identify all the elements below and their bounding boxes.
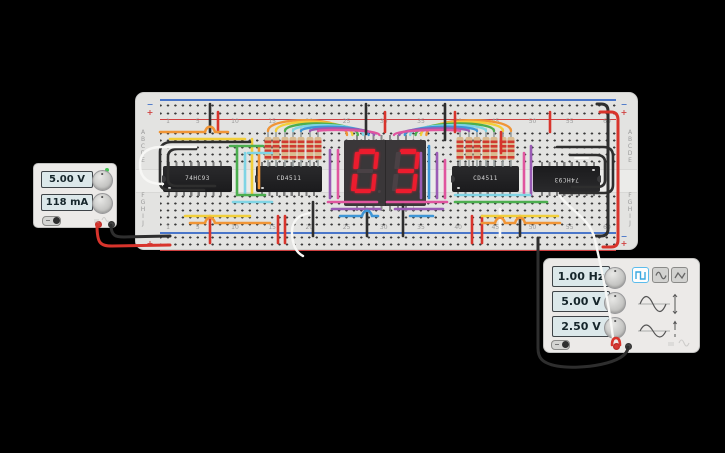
offset-display: 2.50 V	[552, 316, 610, 337]
ic-cd4511-left[interactable]: CD4511	[256, 166, 322, 192]
sine-wave-icon	[655, 271, 667, 280]
column-number: 35	[417, 119, 425, 125]
psu-logo	[93, 215, 111, 223]
digit-right	[392, 149, 421, 193]
plus-symbol: +	[621, 110, 628, 116]
plus-symbol: +	[621, 241, 628, 247]
power-switch[interactable]	[42, 216, 61, 226]
triangle-wave-icon	[674, 271, 686, 280]
voltage-display: 5.00 V	[41, 171, 93, 188]
amplitude-icon	[636, 293, 682, 315]
segment-d	[355, 189, 371, 194]
column-number: 55	[566, 225, 574, 231]
digit-divider	[385, 140, 386, 206]
column-number: 15	[268, 225, 276, 231]
column-number: 15	[268, 119, 276, 125]
ic-label: CD4511	[473, 176, 498, 182]
column-number: 60	[603, 225, 611, 231]
display-bottom-pins	[356, 206, 414, 211]
segment-c	[411, 174, 417, 191]
plus-symbol: +	[147, 110, 154, 116]
segment-a	[359, 149, 375, 154]
column-number: 35	[417, 225, 425, 231]
generator-power-switch[interactable]	[551, 340, 570, 350]
column-number: 50	[529, 119, 537, 125]
current-display: 118 mA	[41, 194, 93, 211]
top-minus-rail-line	[160, 99, 616, 101]
column-number: 55	[566, 119, 574, 125]
column-number: 10	[231, 119, 239, 125]
segment-g	[398, 169, 414, 174]
seven-segment-display[interactable]	[344, 140, 426, 206]
ic-label: 74HC93	[554, 176, 579, 182]
column-number: 20	[306, 119, 314, 125]
ic-notch	[451, 176, 455, 183]
segment-c	[370, 174, 376, 191]
triangle-wave-button[interactable]	[671, 267, 688, 283]
top-plus-holes[interactable]	[160, 110, 616, 117]
segment-a	[400, 149, 416, 154]
column-number: 10	[231, 225, 239, 231]
offset-knob[interactable]	[604, 317, 626, 339]
circuit-canvas: { "app_background": "#000000", "power_su…	[0, 0, 725, 453]
ic-notch	[597, 176, 601, 183]
frequency-knob[interactable]	[604, 267, 626, 289]
function-generator[interactable]: 1.00 Hz 5.00 V 2.50 V	[543, 258, 700, 353]
top-minus-holes[interactable]	[160, 102, 616, 109]
row-letter: E	[628, 158, 632, 164]
pin1-dot	[457, 187, 460, 190]
column-number: 1	[166, 225, 170, 231]
row-letter: E	[141, 158, 145, 164]
pin1-dot	[593, 169, 596, 172]
column-number: 30	[380, 119, 388, 125]
segment-f	[353, 152, 359, 169]
ic-74hc93-left[interactable]: 74HC93	[163, 166, 232, 192]
signal-terminal[interactable]	[613, 343, 620, 350]
pin1-dot	[261, 187, 264, 190]
segment-b	[373, 152, 379, 169]
segment-g	[357, 169, 373, 174]
top-plus-rail-line	[160, 119, 616, 121]
segment-e	[392, 174, 398, 191]
ic-cd4511-right[interactable]: CD4511	[452, 166, 519, 192]
current-knob[interactable]	[92, 193, 113, 214]
bottom-plus-rail-line	[160, 250, 616, 252]
bottom-minus-rail-line	[160, 232, 616, 234]
column-number: 40	[454, 119, 462, 125]
row-letter: J	[629, 221, 631, 227]
ic-notch	[255, 176, 259, 183]
amplitude-display: 5.00 V	[552, 291, 610, 312]
segment-b	[414, 152, 420, 169]
ground-terminal[interactable]	[625, 343, 632, 350]
bottom-minus-holes[interactable]	[160, 234, 616, 241]
segment-d	[396, 189, 412, 194]
power-supply[interactable]: 5.00 V 118 mA	[33, 163, 117, 228]
bottom-plus-holes[interactable]	[160, 241, 616, 248]
column-number: 30	[380, 225, 388, 231]
voltage-knob[interactable]	[92, 170, 113, 191]
column-number: 40	[454, 225, 462, 231]
ic-label: CD4511	[277, 176, 302, 182]
column-number: 25	[343, 225, 351, 231]
column-number: 20	[306, 225, 314, 231]
column-number: 5	[196, 225, 200, 231]
amplitude-knob[interactable]	[604, 292, 626, 314]
ic-label: 74HC93	[185, 176, 210, 182]
ic-notch	[162, 176, 166, 183]
segment-f	[394, 152, 400, 169]
column-number: 45	[492, 119, 500, 125]
square-wave-icon	[635, 271, 646, 280]
frequency-display: 1.00 Hz	[552, 266, 610, 287]
segment-e	[351, 174, 357, 191]
column-number: 5	[196, 119, 200, 125]
decimal-point	[418, 190, 422, 194]
column-number: 50	[529, 225, 537, 231]
column-number: 25	[343, 119, 351, 125]
sine-wave-button[interactable]	[652, 267, 669, 283]
square-wave-button[interactable]	[632, 267, 649, 283]
decimal-point	[377, 190, 381, 194]
column-number: 60	[603, 119, 611, 125]
digit-left	[351, 149, 380, 193]
pin1-dot	[168, 187, 171, 190]
plus-symbol: +	[147, 241, 154, 247]
row-letter: J	[142, 221, 144, 227]
ic-74hc93-right-rotated[interactable]: 74HC93	[533, 166, 600, 192]
generator-logo	[667, 337, 693, 347]
column-number: 45	[492, 225, 500, 231]
column-number: 1	[166, 119, 170, 125]
